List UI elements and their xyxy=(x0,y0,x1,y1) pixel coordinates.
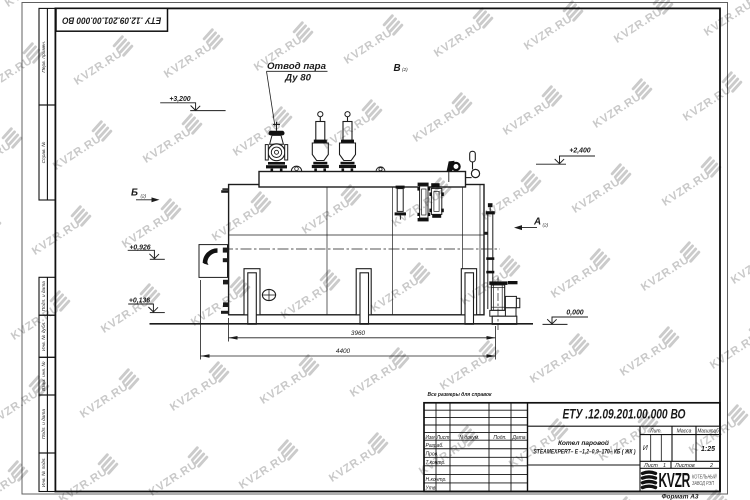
svg-text:Формат А3: Формат А3 xyxy=(662,494,699,500)
svg-text:(2): (2) xyxy=(141,194,147,199)
svg-text:ЕТУ .12.09.201.00.000 ВО: ЕТУ .12.09.201.00.000 ВО xyxy=(563,406,686,421)
svg-text:КОТЕЛЬНЫЙ: КОТЕЛЬНЫЙ xyxy=(692,473,717,481)
svg-text:(2): (2) xyxy=(543,223,549,228)
svg-text:4400: 4400 xyxy=(336,348,351,355)
svg-text:Подп. и дата: Подп. и дата xyxy=(41,281,47,311)
svg-text:Отвод пара: Отвод пара xyxy=(267,61,327,72)
svg-text:2: 2 xyxy=(709,463,713,469)
svg-text:Лист: Лист xyxy=(643,463,658,469)
svg-text:Инв. № подл.: Инв. № подл. xyxy=(41,457,47,487)
svg-text:Изм: Изм xyxy=(425,435,435,441)
svg-text:KVZR: KVZR xyxy=(659,469,691,492)
svg-text:Ду 80: Ду 80 xyxy=(284,73,312,84)
svg-text:Дата: Дата xyxy=(511,435,525,441)
svg-text:ЗАВОД РЭП: ЗАВОД РЭП xyxy=(692,481,714,487)
svg-text:Котел паровой: Котел паровой xyxy=(558,439,609,447)
svg-text:(2): (2) xyxy=(402,67,408,72)
svg-text:3960: 3960 xyxy=(351,330,366,337)
svg-text:Утв.: Утв. xyxy=(426,485,437,491)
svg-text:А: А xyxy=(533,217,541,228)
svg-text:Масса: Масса xyxy=(677,429,692,435)
svg-text:В: В xyxy=(394,63,401,74)
svg-text:Б: Б xyxy=(131,188,138,199)
svg-text:Подп.: Подп. xyxy=(493,435,506,441)
svg-text:Перв. примен.: Перв. примен. xyxy=(41,41,47,73)
svg-text:+2,400: +2,400 xyxy=(569,148,590,155)
svg-text:Разраб.: Разраб. xyxy=(426,443,444,449)
svg-text:0,000: 0,000 xyxy=(566,309,583,316)
svg-text:Все размеры для справок: Все размеры для справок xyxy=(428,392,493,398)
svg-text:Справ. №: Справ. № xyxy=(41,142,47,164)
svg-text:Н.контр.: Н.контр. xyxy=(426,477,447,483)
svg-text:ЕТУ .12.09.201.00.000 ВО: ЕТУ .12.09.201.00.000 ВО xyxy=(62,15,161,25)
svg-text:Лист: Лист xyxy=(436,435,450,441)
svg-text:Подп. и дата: Подп. и дата xyxy=(41,409,47,439)
svg-text:+3,200: +3,200 xyxy=(169,96,190,103)
svg-text:Инв. № дубл.: Инв. № дубл. xyxy=(41,321,47,351)
